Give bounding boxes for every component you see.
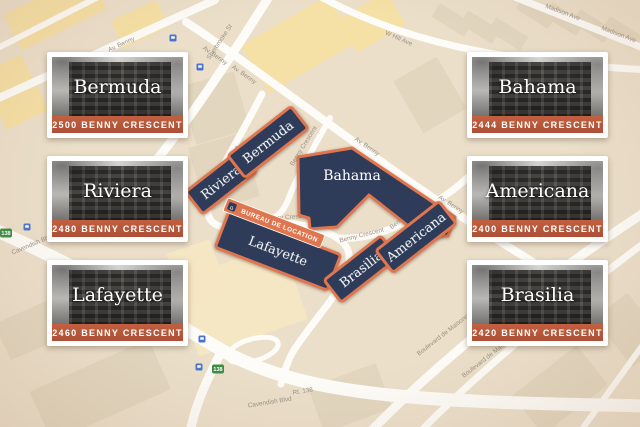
building-address: 2444 BENNY CRESCENT bbox=[472, 116, 603, 133]
building-address: 2500 BENNY CRESCENT bbox=[52, 116, 183, 133]
property-card-riviera[interactable]: Riviera 2480 BENNY CRESCENT bbox=[47, 156, 188, 242]
building-name: Riviera bbox=[52, 161, 183, 220]
transit-icon bbox=[24, 224, 31, 231]
building-name: Lafayette bbox=[52, 265, 183, 324]
building-name: Bermuda bbox=[52, 57, 183, 116]
property-card-americana[interactable]: Americana 2400 BENNY CRESCENT bbox=[467, 156, 608, 242]
building-photo: Bahama bbox=[472, 57, 603, 116]
building-photo: Brasilia bbox=[472, 265, 603, 324]
building-name: Bahama bbox=[472, 57, 603, 116]
transit-icon bbox=[197, 64, 204, 71]
building-photo: Riviera bbox=[52, 161, 183, 220]
property-card-brasilia[interactable]: Brasilia 2420 BENNY CRESCENT bbox=[467, 260, 608, 346]
building-address: 2400 BENNY CRESCENT bbox=[472, 220, 603, 237]
route-shield: 138 bbox=[212, 365, 224, 374]
property-card-lafayette[interactable]: Lafayette 2460 BENNY CRESCENT bbox=[47, 260, 188, 346]
transit-icon bbox=[170, 35, 177, 42]
building-name: Brasilia bbox=[472, 265, 603, 324]
building-photo: Americana bbox=[472, 161, 603, 220]
building-address: 2460 BENNY CRESCENT bbox=[52, 324, 183, 341]
property-card-bermuda[interactable]: Bermuda 2500 BENNY CRESCENT bbox=[47, 52, 188, 138]
street-label: Cavendish Blvd bbox=[247, 396, 292, 410]
transit-icon bbox=[199, 336, 206, 343]
property-card-bahama[interactable]: Bahama 2444 BENNY CRESCENT bbox=[467, 52, 608, 138]
building-photo: Lafayette bbox=[52, 265, 183, 324]
route-shield: 138 bbox=[0, 229, 12, 238]
map-canvas: Av. Benny Av. Benny Av. Benny Av. Benny … bbox=[0, 0, 640, 427]
building-address: 2420 BENNY CRESCENT bbox=[472, 324, 603, 341]
building-address: 2480 BENNY CRESCENT bbox=[52, 220, 183, 237]
transit-icon bbox=[196, 364, 203, 371]
building-name: Americana bbox=[472, 161, 603, 220]
route-shield-number: 138 bbox=[213, 367, 222, 373]
map-building-label: Bahama bbox=[323, 168, 381, 184]
building-photo: Bermuda bbox=[52, 57, 183, 116]
route-shield-number: 138 bbox=[1, 231, 10, 237]
